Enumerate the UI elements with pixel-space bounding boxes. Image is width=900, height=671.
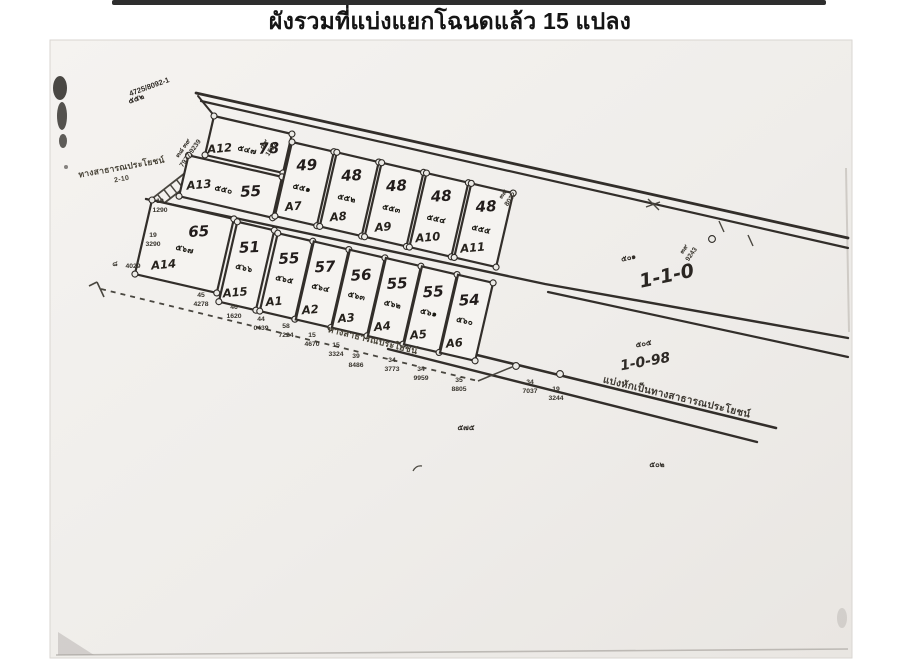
plot-id-label: A9 [373, 219, 392, 235]
plot-size-label: 55 [240, 182, 262, 201]
plot-id-label: A1 [264, 294, 283, 310]
svg-text:9959: 9959 [413, 375, 428, 382]
plot-size-label: 55 [386, 274, 408, 293]
svg-text:58: 58 [282, 323, 290, 330]
plot-size-label: 56 [350, 266, 372, 285]
survey-nail [709, 236, 716, 243]
plot-size-label: 55 [278, 249, 300, 268]
svg-text:3290: 3290 [145, 241, 160, 248]
survey-nail [513, 363, 520, 370]
svg-text:19: 19 [149, 232, 157, 239]
plot-id-label: A11 [459, 239, 486, 255]
svg-text:1290: 1290 [152, 207, 167, 214]
svg-text:8805: 8805 [451, 386, 466, 393]
scan-edge-top [112, 0, 826, 5]
svg-text:19: 19 [156, 198, 164, 205]
svg-text:35: 35 [455, 377, 463, 384]
plot-id-label: A7 [283, 198, 302, 214]
svg-text:3324: 3324 [328, 351, 343, 358]
plot-id-label: A15 [221, 284, 248, 300]
svg-text:4278: 4278 [193, 301, 208, 308]
svg-text:34: 34 [526, 379, 534, 386]
plot-id-label: A5 [408, 327, 427, 343]
svg-text:8486: 8486 [348, 362, 363, 369]
svg-text:4029: 4029 [125, 263, 140, 270]
svg-text:15: 15 [308, 332, 316, 339]
plot-size-label: 54 [458, 291, 480, 310]
plot-size-label: 65 [188, 222, 210, 241]
svg-text:7037: 7037 [522, 388, 537, 395]
plot-size-label: 55 [422, 282, 444, 301]
plot-id-label: A2 [300, 302, 319, 318]
scanned-survey-document: ผังรวมที่แบ่งแยกโฉนดแล้ว 15 แปลง [0, 0, 900, 671]
small-ref: ๕๗๕ [458, 423, 475, 432]
survey-nail [557, 371, 564, 378]
plot-size-label: 48 [429, 187, 452, 206]
svg-text:39: 39 [352, 353, 360, 360]
svg-text:0439: 0439 [253, 325, 268, 332]
plot-size-label: 49 [295, 156, 318, 175]
plot-id-label: A3 [336, 310, 355, 326]
plot-size-label: 48 [474, 197, 497, 216]
plot-id-label: A14 [150, 256, 177, 272]
svg-text:๘: ๘ [112, 261, 118, 268]
plot-size-label: 57 [314, 257, 336, 276]
plot-id-label: A4 [372, 319, 391, 335]
svg-text:4670: 4670 [304, 341, 319, 348]
svg-text:7224: 7224 [278, 332, 293, 339]
svg-text:15: 15 [332, 342, 340, 349]
plot-size-label: 48 [340, 166, 363, 185]
svg-text:34: 34 [417, 366, 425, 373]
svg-text:44: 44 [257, 316, 265, 323]
plot-size-label: 51 [239, 238, 261, 257]
plot-id-label: A12 [206, 140, 233, 156]
plot-id-label: A13 [185, 177, 212, 193]
svg-text:46: 46 [230, 304, 238, 311]
svg-text:3773: 3773 [384, 366, 399, 373]
survey-plan-drawing: 78 ๕๔๗ A12 55 ๕๕๐ A13 [0, 0, 900, 671]
svg-text:1620: 1620 [226, 313, 241, 320]
plot-size-label: 48 [385, 176, 408, 195]
svg-text:19: 19 [552, 386, 560, 393]
small-ref: ๕๐๒ [649, 460, 664, 469]
plot-id-label: A6 [444, 335, 463, 351]
svg-text:3244: 3244 [548, 395, 563, 402]
plot-id-label: A10 [414, 229, 441, 245]
svg-text:34: 34 [388, 357, 396, 364]
svg-text:45: 45 [197, 292, 205, 299]
plot-id-label: A8 [328, 209, 347, 225]
